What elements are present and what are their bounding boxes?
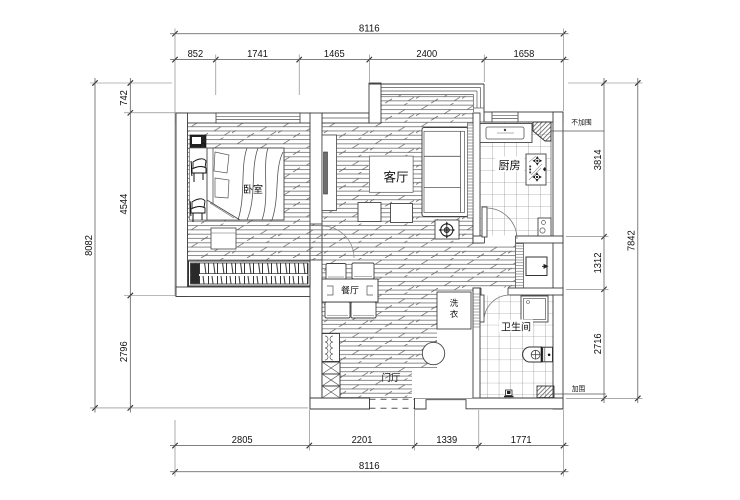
svg-text:8082: 8082 xyxy=(83,235,95,256)
svg-text:2805: 2805 xyxy=(232,434,253,446)
svg-text:1741: 1741 xyxy=(247,48,268,60)
svg-text:1465: 1465 xyxy=(324,48,345,60)
svg-text:2796: 2796 xyxy=(118,341,130,362)
svg-text:卧室: 卧室 xyxy=(243,183,263,196)
svg-text:8116: 8116 xyxy=(359,23,380,35)
svg-text:2201: 2201 xyxy=(352,434,373,446)
svg-text:不加围: 不加围 xyxy=(571,118,592,127)
svg-text:852: 852 xyxy=(188,48,204,60)
svg-text:1312: 1312 xyxy=(592,252,604,273)
svg-text:衣: 衣 xyxy=(450,309,459,319)
svg-text:2716: 2716 xyxy=(592,333,604,354)
svg-text:3814: 3814 xyxy=(592,149,604,170)
svg-text:厨房: 厨房 xyxy=(499,159,521,172)
svg-text:客厅: 客厅 xyxy=(383,169,408,184)
svg-text:7842: 7842 xyxy=(625,230,637,251)
svg-text:加围: 加围 xyxy=(572,384,586,393)
svg-text:1771: 1771 xyxy=(511,434,532,446)
svg-text:1339: 1339 xyxy=(436,434,457,446)
svg-text:8116: 8116 xyxy=(359,460,380,472)
svg-text:餐厅: 餐厅 xyxy=(341,285,359,296)
svg-text:卫生间: 卫生间 xyxy=(501,321,531,334)
svg-text:洗: 洗 xyxy=(450,298,459,308)
svg-text:门厅: 门厅 xyxy=(381,372,401,384)
svg-text:742: 742 xyxy=(118,90,130,106)
svg-text:4544: 4544 xyxy=(118,194,130,215)
svg-text:1658: 1658 xyxy=(514,48,535,60)
svg-text:2400: 2400 xyxy=(416,48,437,60)
